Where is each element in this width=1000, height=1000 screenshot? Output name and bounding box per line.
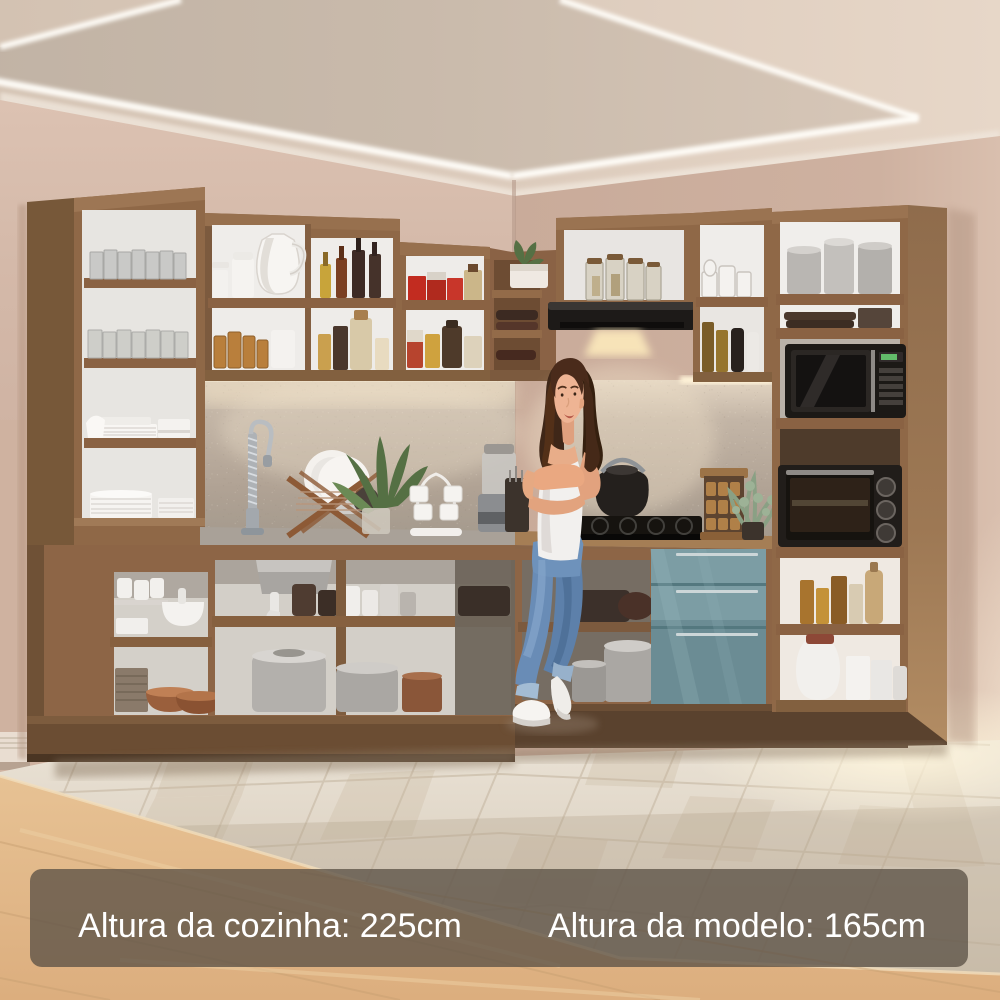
svg-text:Altura da modelo: 165cm: Altura da modelo: 165cm xyxy=(548,907,926,945)
svg-text:Altura da cozinha: 225cm: Altura da cozinha: 225cm xyxy=(78,907,462,945)
